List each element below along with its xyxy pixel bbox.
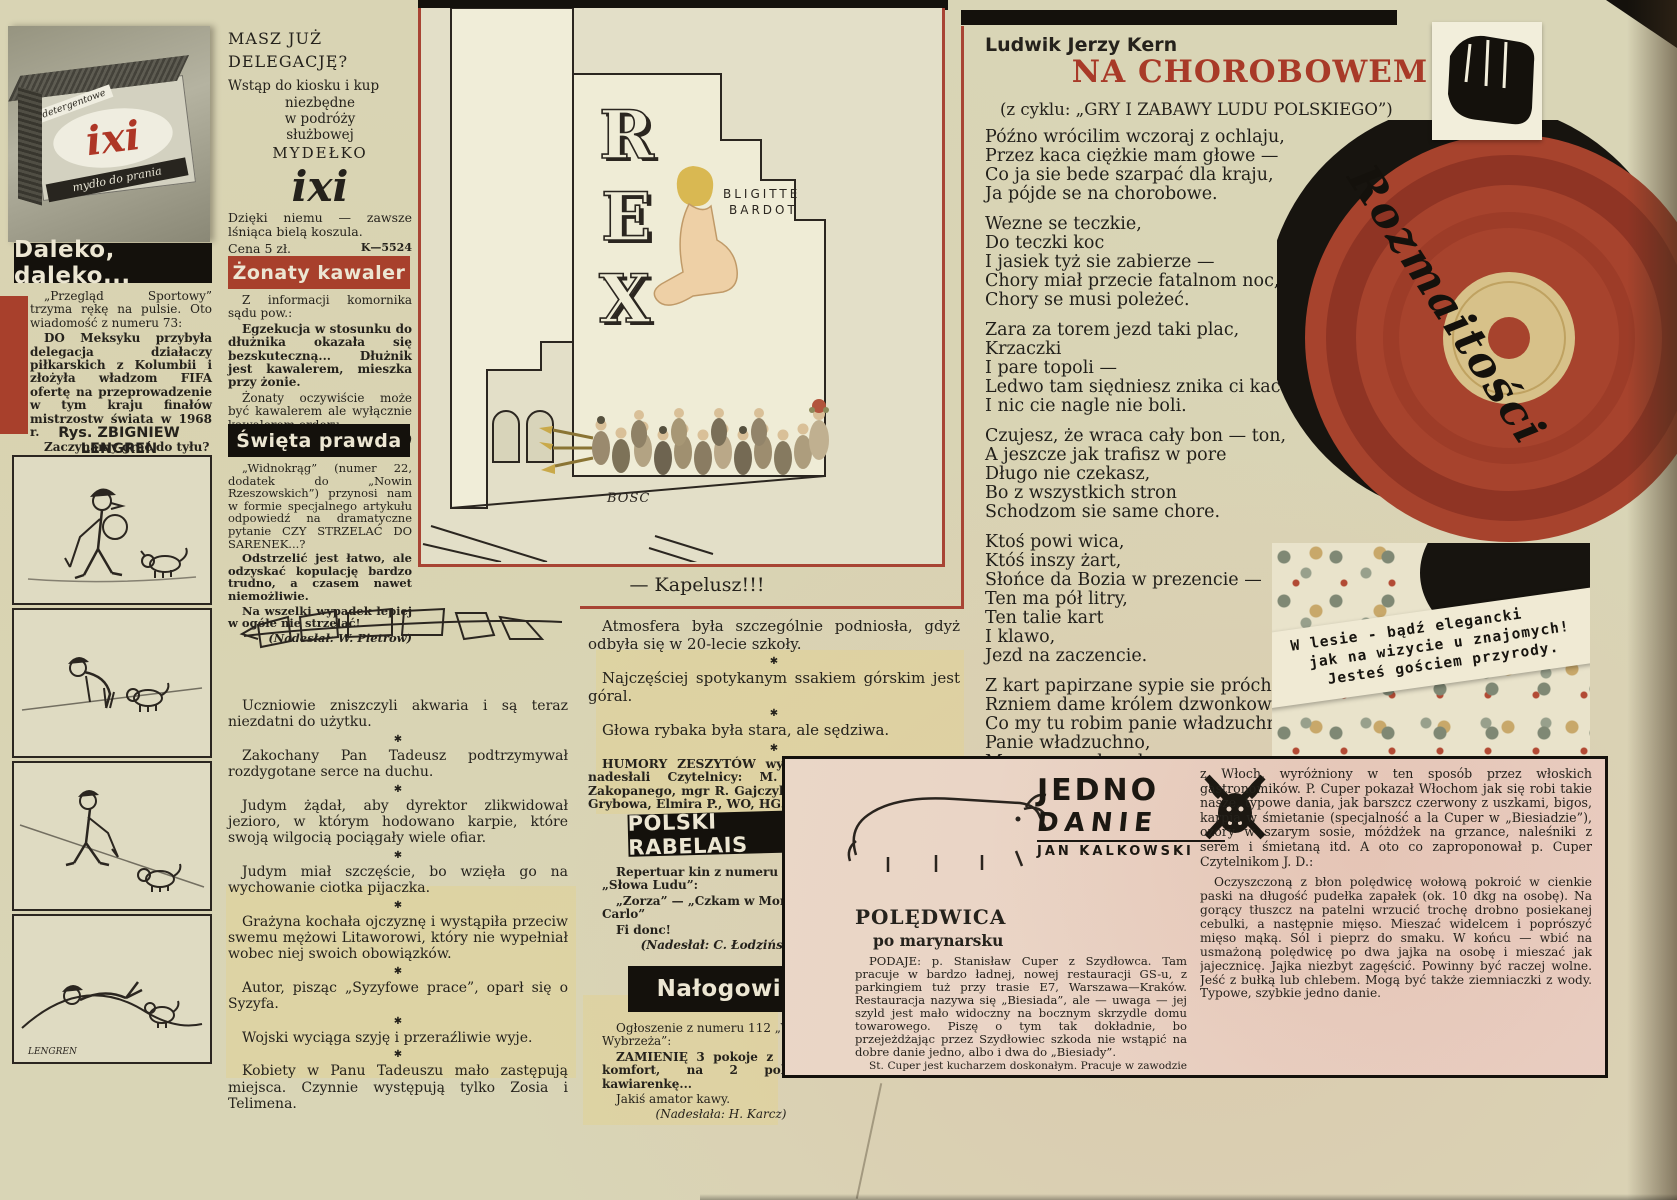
ad-line-1: MASZ JUŻ xyxy=(228,28,412,50)
floral-pattern-box: W lesie - bądź elegancki jak na wizycie … xyxy=(1272,543,1590,761)
poem-author: Ludwik Jerzy Kern xyxy=(985,34,1177,56)
zonaty-p1: Z informacji komornika sądu pow.: xyxy=(228,294,412,321)
lengren-cartoon-1 xyxy=(14,457,210,603)
recipe-column-2: z Włoch, wyróżniony w ten sposób przez w… xyxy=(1200,767,1592,1067)
ad-line-8: Dzięki niemu — zawsze lśniąca bielą kosz… xyxy=(228,211,412,239)
humor-item: Kobiety w Panu Tadeuszu mało zastępują m… xyxy=(228,1063,568,1112)
ad-line-4: niezbędne xyxy=(228,95,412,111)
lengren-cartoon-4: LENGREN xyxy=(14,916,210,1062)
humor-item: Judym żądał, aby dyrektor zlikwidował je… xyxy=(228,798,568,847)
humor-item: Autor, pisząc „Syzyfowe prace”, oparł si… xyxy=(228,980,568,1013)
star-separator: ✱ xyxy=(228,733,568,746)
ad-line-6: służbowej xyxy=(228,127,412,143)
daleko-header: Daleko, daleko... xyxy=(14,243,212,283)
ad-line-3: Wstąp do kiosku i kup xyxy=(228,78,412,95)
recipe-c1-p2: St. Cuper jest kucharzem doskonałym. Pra… xyxy=(855,1061,1187,1071)
film-doodle-icon xyxy=(238,596,568,662)
humor-item: Atmosfera była szczególnie podniosła, gd… xyxy=(588,618,960,653)
poster-line-1: BLIGITTE xyxy=(723,187,800,201)
recipe-c2-p2: Oczyszczoną z błon polędwicę wołową pokr… xyxy=(1200,876,1592,1001)
cartoon-caption: — Kapelusz!!! xyxy=(592,574,802,596)
ad-line-2: DELEGACJĘ? xyxy=(228,50,412,74)
page-curl-edge xyxy=(1627,0,1677,1200)
rex-letter-x: X xyxy=(599,260,651,338)
recipe-column-1: PODAJE: p. Stanisław Cuper z Szydłowca. … xyxy=(855,955,1187,1071)
humor-left-column: Uczniowie zniszczyli akwaria i są teraz … xyxy=(228,698,568,1112)
humor-item: Zakochany Pan Tadeusz podtrzymywał rozdy… xyxy=(228,748,568,781)
hand-icon xyxy=(1432,22,1542,140)
humor-item: Grażyna kochała ojczyznę i wystąpiła prz… xyxy=(228,914,568,963)
lengren-panel-2 xyxy=(12,608,212,758)
soap-brand: ixi xyxy=(83,111,143,164)
rex-cartoon-drawing: R R E E X X BLIGITTE BARDOT xyxy=(421,8,942,562)
recipe-c1-p1: PODAJE: p. Stanisław Cuper z Szydłowca. … xyxy=(855,955,1187,1059)
star-separator: ✱ xyxy=(228,849,568,862)
rex-cartoon-frame: R R E E X X BLIGITTE BARDOT xyxy=(418,8,945,567)
bosc-signature: BOSC xyxy=(606,491,650,506)
star-separator: ✱ xyxy=(228,1048,568,1061)
humor-item: Uczniowie zniszczyli akwaria i są teraz … xyxy=(228,698,568,731)
rex-letter-r: R xyxy=(599,96,655,174)
ixi-ad-photo: detergentowe ixi mydło do prania xyxy=(8,26,210,242)
recipe-c2-p1: z Włoch, wyróżniony w ten sposób przez w… xyxy=(1200,767,1592,869)
rex-letter-e: E xyxy=(601,178,651,256)
star-separator: ✱ xyxy=(588,655,960,668)
star-separator: ✱ xyxy=(588,742,960,755)
red-margin-block xyxy=(0,296,28,434)
swieta-prawda-header: Święta prawda xyxy=(228,424,410,457)
star-separator: ✱ xyxy=(228,1015,568,1028)
nalogowiec-byline: (Nadesłała: H. Karcz) xyxy=(602,1108,840,1121)
nalogowiec-p3: Jakiś amator kawy. xyxy=(602,1093,840,1106)
star-separator: ✱ xyxy=(228,783,568,796)
humor-item: Judym miał szczęście, bo wzięła go na wy… xyxy=(228,864,568,897)
zonaty-p2: Egzekucja w stosunku do dłużnika okazała… xyxy=(228,323,412,390)
red-vertical-rule xyxy=(961,26,964,609)
ixi-soap-box: detergentowe ixi mydło do prania xyxy=(30,75,196,201)
bardot-hair xyxy=(677,166,713,206)
lengren-signature: LENGREN xyxy=(27,1047,78,1057)
star-separator: ✱ xyxy=(228,965,568,978)
lengren-cartoon-2 xyxy=(14,610,210,756)
daleko-p1: „Przegląd Sportowy” trzyma rękę na pulsi… xyxy=(30,290,212,330)
ad-line-7: MYDEŁKO xyxy=(228,143,412,163)
lengren-cartoon-3 xyxy=(14,763,210,909)
newspaper-page: detergentowe ixi mydło do prania Daleko,… xyxy=(0,0,1677,1200)
poem-subtitle: (z cyklu: „GRY I ZABAWY LUDU POLSKIEGO”) xyxy=(1000,100,1490,119)
star-separator: ✱ xyxy=(588,707,960,720)
recipe-subtitle: po marynarsku xyxy=(873,931,1003,950)
lengren-panel-3 xyxy=(12,761,212,911)
ixi-text-ad: MASZ JUŻ DELEGACJĘ? Wstąp do kiosku i ku… xyxy=(228,28,412,256)
hand-photo xyxy=(1432,22,1542,140)
soap-box-side xyxy=(18,87,42,206)
ad-brand: ixi xyxy=(228,163,412,211)
ad-price: Cena 5 zł. xyxy=(228,241,291,256)
poster-line-2: BARDOT xyxy=(729,203,798,217)
recipe-title: POLĘDWICA xyxy=(855,905,1006,929)
ad-code: K—5524 xyxy=(361,241,412,256)
ad-line-5: w podróży xyxy=(228,111,412,127)
poem-title: NA CHOROBOWEM xyxy=(1040,54,1460,90)
zonaty-kawaler-header: Żonaty kawaler xyxy=(228,256,410,289)
bottom-edge-shadow xyxy=(700,1194,1677,1200)
swieta-p1: „Widnokrąg” (numer 22, dodatek do „Nowin… xyxy=(228,462,412,550)
lengren-panel-4: LENGREN xyxy=(12,914,212,1064)
top-rule-right xyxy=(961,10,1397,25)
star-separator: ✱ xyxy=(228,899,568,912)
humor-item: Głowa rybaka była stara, ale sędziwa. xyxy=(588,722,960,740)
cinema-doors xyxy=(493,411,553,462)
red-horizontal-rule xyxy=(580,606,964,609)
daleko-p2: DO Meksyku przybyła delegacja działaczy … xyxy=(30,332,212,439)
recipe-feature-box: JEDNO DANIE JAN KALKOWSKI POLĘDWICA po m… xyxy=(782,756,1608,1078)
lengren-credit: Rys. ZBIGNIEW LENGREN xyxy=(24,425,214,457)
swieta-p2: Odstrzelić jest łatwo, ale odzyskać kopu… xyxy=(228,552,412,602)
lengren-panel-1 xyxy=(12,455,212,605)
humor-item: Najczęściej spotykanym ssakiem górskim j… xyxy=(588,670,960,705)
bottom-crease xyxy=(856,1083,882,1199)
humor-item: Wojski wyciąga szyję i przeraźliwie wyje… xyxy=(228,1030,568,1046)
